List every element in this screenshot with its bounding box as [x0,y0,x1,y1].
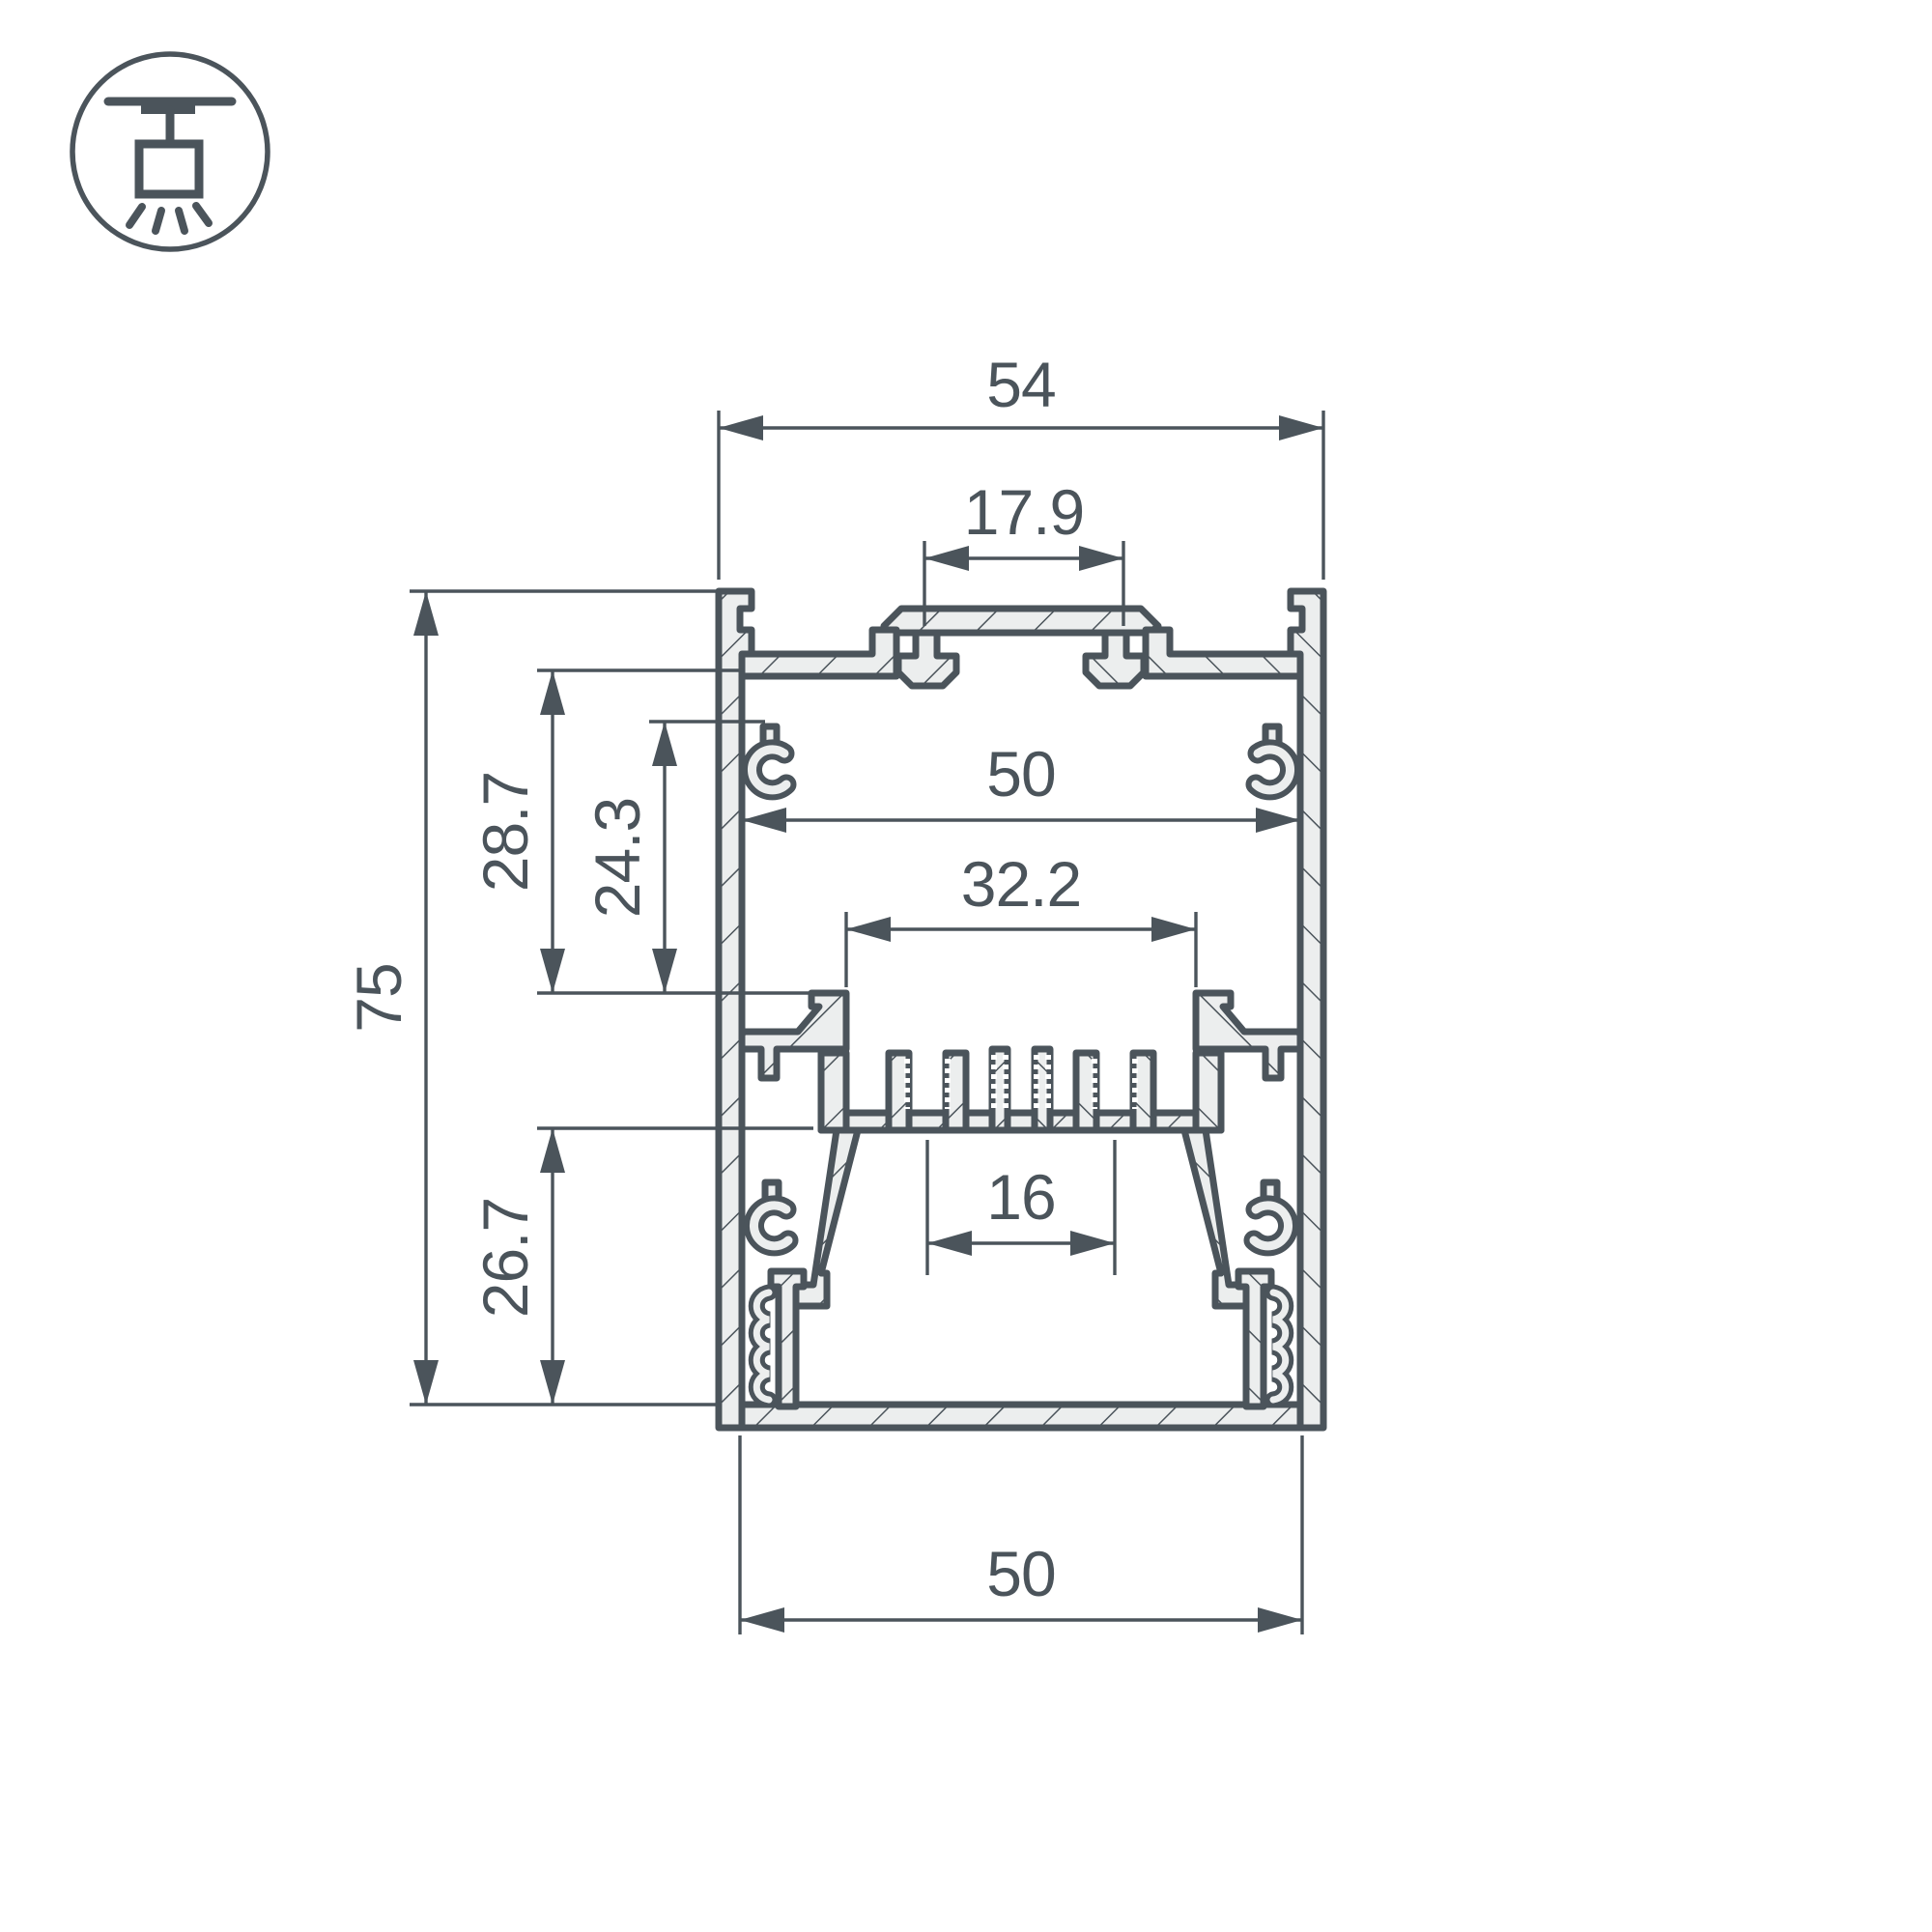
technical-drawing-page: 54 17.9 50 32.2 16 [0,0,1932,1932]
icon-light-rays [129,206,209,231]
led-platform-base [821,1113,1221,1130]
dim-label-lower-cavity-depth: 26.7 [469,1198,541,1318]
profile-cross-section-drawing: 54 17.9 50 32.2 16 [0,0,1932,1932]
dimension-inner-width: 50 [742,738,1300,833]
dim-label-bracket-opening: 32.2 [961,848,1081,920]
pendant-mount-icon [72,54,268,249]
icon-luminaire-box [139,144,199,194]
dimension-top-slot-width: 17.9 [924,476,1123,626]
profile-body [719,591,1323,1428]
icon-circle [72,54,268,249]
dim-label-upper-cavity-depth: 28.7 [469,772,541,892]
dimension-screw-spacing: 16 [927,1140,1115,1275]
profile-right-half [1035,591,1323,1428]
bottom-tray [742,1405,1300,1428]
dim-label-top-slot-width: 17.9 [964,476,1084,548]
dim-label-outer-width: 54 [986,349,1055,420]
dim-label-bottom-width: 50 [986,1538,1055,1609]
dim-label-inner-width: 50 [986,738,1055,810]
dimension-bottom-width: 50 [740,1435,1302,1634]
dim-label-mount-plate-depth: 24.3 [582,798,653,918]
dim-label-overall-height: 75 [343,963,414,1032]
profile-left-half [719,591,1008,1428]
dimension-upper-cavity-depth: 28.7 [469,670,848,993]
dimension-bracket-opening: 32.2 [846,848,1196,987]
dim-label-screw-spacing: 16 [986,1161,1055,1233]
